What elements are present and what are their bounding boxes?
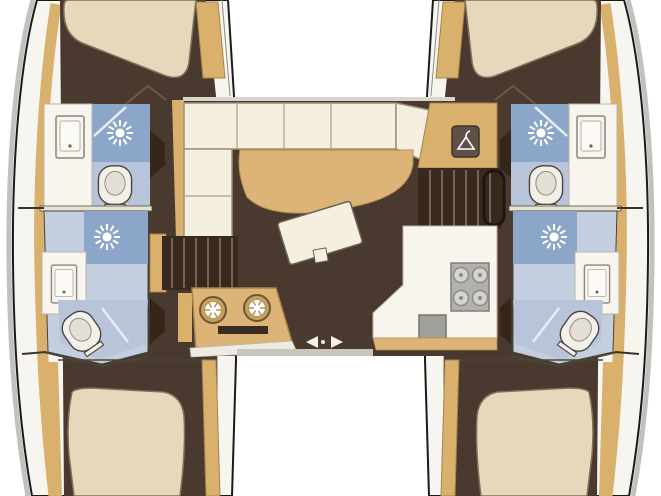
stairs-starboard [418, 168, 504, 228]
galley-side-trim [178, 293, 192, 342]
galley-tan-strip [373, 338, 497, 350]
salon [150, 97, 504, 357]
galley-stove [451, 263, 489, 311]
galley-port-unit [178, 288, 297, 357]
floor-plan-canvas [0, 0, 661, 496]
sliding-door-track [237, 349, 373, 356]
oven-slot [218, 326, 268, 334]
table-leg [313, 248, 328, 263]
stairs-port [150, 234, 238, 292]
salon-front-window-line [183, 97, 455, 101]
galley-sink [419, 315, 446, 340]
plan-svg [0, 0, 661, 496]
hanging-locker [452, 126, 479, 157]
